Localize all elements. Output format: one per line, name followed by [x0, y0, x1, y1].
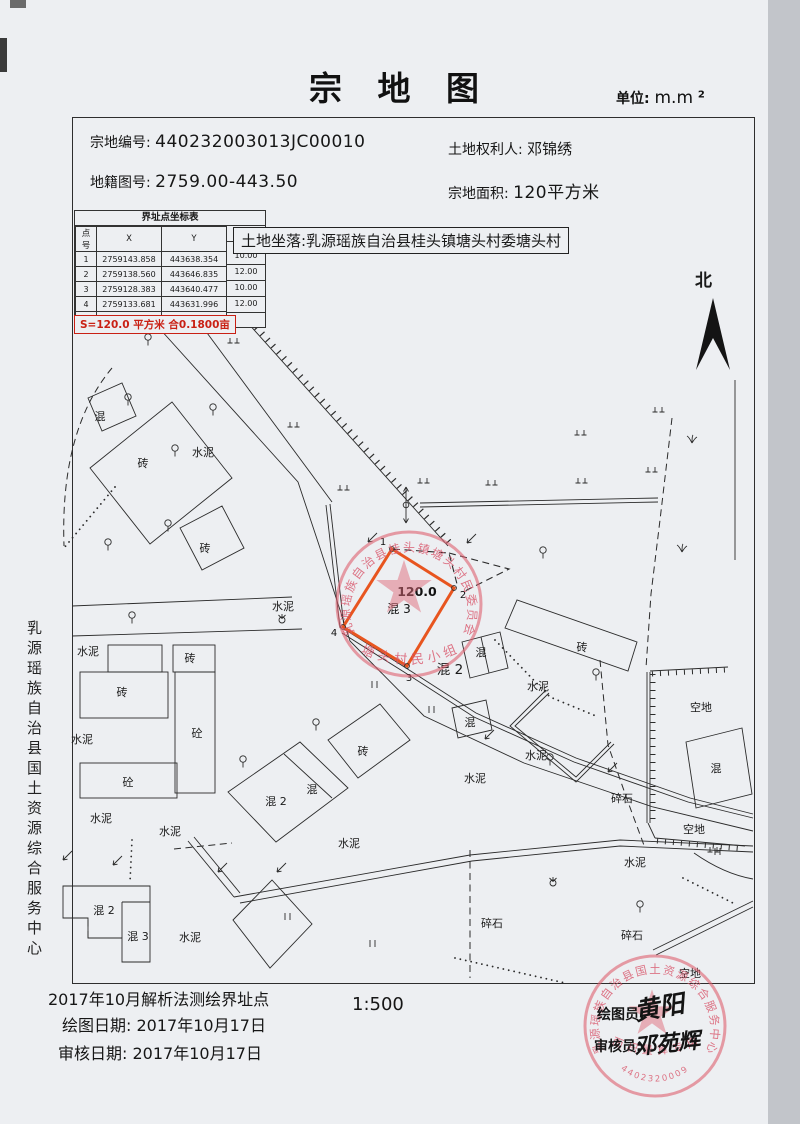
coord-cell-y: 443638.354 [162, 252, 227, 267]
map-label: 水泥 [464, 772, 486, 785]
coord-cell-pt: 2 [76, 267, 97, 282]
coord-row: 42759133.681443631.996 [76, 297, 227, 312]
map-label: 砼 [123, 776, 134, 789]
map-label: 水泥 [179, 931, 201, 944]
draw-date-line: 绘图日期: 2017年10月17日 [62, 1012, 266, 1036]
coord-table-main: 点号 X Y 12759143.858443638.35422759138.56… [75, 226, 227, 327]
map-label: 混 3 [127, 930, 149, 943]
map-label: 混 [307, 783, 318, 796]
area-summary-line: S=120.0 平方米 合0.1800亩 [74, 315, 236, 334]
coord-cell-x: 2759143.858 [97, 252, 162, 267]
svg-text:4402320009: 4402320009 [619, 1064, 692, 1085]
coord-cell-pt: 4 [76, 297, 97, 312]
col-x: X [97, 227, 162, 252]
map-label: 混 [95, 410, 106, 423]
map-scale: 1:500 [352, 994, 404, 1015]
coord-row: 22759138.560443646.835 [76, 267, 227, 282]
draw-date-value: 2017年10月17日 [137, 1016, 266, 1035]
coord-cell-y: 443640.477 [162, 282, 227, 297]
coord-cell-pt: 3 [76, 282, 97, 297]
map-label: 混 [711, 762, 722, 775]
edge-length-cell: 10.00 [227, 281, 265, 297]
coord-cell-y: 443646.835 [162, 267, 227, 282]
north-arrow-icon [696, 298, 730, 370]
map-label: 混 2 [265, 795, 287, 808]
map-label: 碎石 [621, 928, 643, 942]
map-label: 砖 [577, 640, 588, 654]
map-label: 砖 [358, 744, 369, 758]
draw-date-label: 绘图日期: [62, 1016, 131, 1035]
stamp-code-text: 4402320009 [619, 1064, 692, 1085]
map-label: 砖 [185, 651, 196, 665]
map-label: 空地 [683, 822, 705, 836]
survey-method-note: 2017年10月解析法测绘界址点 [48, 986, 269, 1010]
map-label: 水泥 [77, 645, 99, 658]
coord-cell-y: 443631.996 [162, 297, 227, 312]
col-y: Y [162, 227, 227, 252]
parcel-map-document: 宗 地 图 单位: m.m 2 宗地编号: 440232003013JC0001… [0, 0, 800, 1124]
cadastral-map-drawing: 1 2 3 4 120.0 混 3 混砖水泥砖水泥水泥砖砖砼砼水泥水泥水泥混 2… [0, 0, 800, 1124]
map-label: 砖 [200, 541, 211, 555]
vertex-4-label: 4 [331, 628, 337, 639]
map-label: 混 [465, 716, 476, 729]
map-label: 混 [476, 646, 487, 659]
map-label: 砼 [192, 727, 203, 740]
map-label: 空地 [690, 700, 712, 714]
map-label: 水泥 [90, 812, 112, 825]
coord-row: 32759128.383443640.477 [76, 282, 227, 297]
edge-length-cell: 12.00 [227, 265, 265, 281]
map-label: 水泥 [525, 749, 547, 762]
map-label: 碎石 [481, 916, 503, 930]
coord-cell-x: 2759138.560 [97, 267, 162, 282]
map-roads [72, 318, 753, 955]
reviewer-signature: 邓苑辉 [633, 1023, 702, 1062]
map-label: 水泥 [338, 837, 360, 850]
edge-length-cell: 12.00 [227, 297, 265, 313]
agency-vertical-text: 乳源瑶族自治县国土资源综合服务中心 [24, 620, 45, 960]
map-labels: 混砖水泥砖水泥水泥砖砖砼砼水泥水泥水泥混 2混砖水泥混 2混 3水泥砖水泥混混 … [71, 410, 722, 980]
map-label: 混 2 [93, 904, 115, 917]
map-label: 碎石 [611, 791, 633, 805]
col-point: 点号 [76, 227, 97, 252]
map-label: 水泥 [624, 856, 646, 869]
coord-cell-x: 2759133.681 [97, 297, 162, 312]
map-label: 水泥 [272, 600, 294, 613]
map-label: 水泥 [192, 446, 214, 459]
land-location-box: 土地坐落:乳源瑶族自治县桂头镇塘头村委塘头村 [233, 227, 569, 254]
map-label: 水泥 [159, 825, 181, 838]
coord-cell-pt: 1 [76, 252, 97, 267]
map-label: 砖 [138, 456, 149, 470]
review-date-label: 审核日期: [58, 1044, 127, 1063]
map-label: 砖 [117, 685, 128, 699]
map-label: 水泥 [71, 733, 93, 746]
map-slope-hatching [238, 309, 745, 849]
coord-row: 12759143.858443638.354 [76, 252, 227, 267]
north-label: 北 [695, 266, 712, 291]
coord-cell-x: 2759128.383 [97, 282, 162, 297]
review-date-value: 2017年10月17日 [133, 1044, 262, 1063]
coord-table-title: 界址点坐标表 [75, 211, 265, 226]
map-label: 水泥 [527, 680, 549, 693]
review-date-line: 审核日期: 2017年10月17日 [58, 1040, 262, 1064]
land-office-stamp: 乳源瑶族自治县国土资源综合服务中心 面积量算专用 4402320009 [585, 956, 725, 1096]
